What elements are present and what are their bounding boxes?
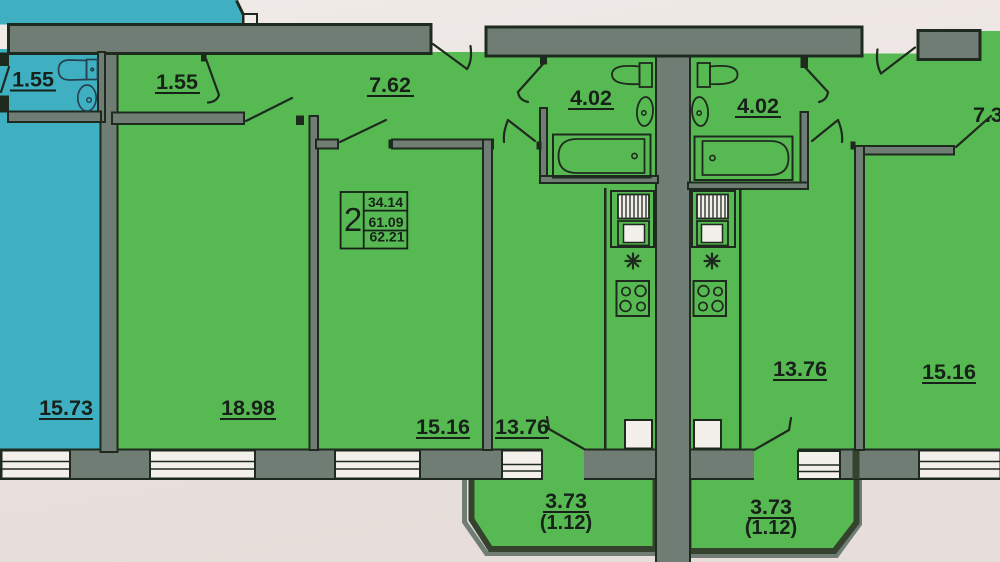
svg-text:62.21: 62.21: [369, 229, 404, 245]
svg-text:(1.12): (1.12): [540, 512, 592, 534]
svg-text:4.02: 4.02: [737, 94, 779, 118]
svg-text:2: 2: [344, 201, 362, 238]
svg-text:(1.12): (1.12): [745, 517, 797, 539]
svg-text:15.73: 15.73: [39, 396, 93, 420]
svg-text:3.73: 3.73: [545, 489, 587, 513]
svg-text:4.02: 4.02: [570, 86, 612, 110]
svg-text:1.55: 1.55: [156, 70, 198, 94]
svg-text:3.73: 3.73: [750, 495, 792, 519]
svg-text:61.09: 61.09: [368, 214, 403, 230]
svg-text:34.14: 34.14: [368, 194, 403, 210]
svg-text:18.98: 18.98: [221, 396, 275, 420]
svg-text:13.76: 13.76: [495, 415, 549, 439]
svg-text:13.76: 13.76: [773, 357, 827, 381]
svg-text:15.16: 15.16: [416, 415, 470, 439]
svg-text:7.36: 7.36: [973, 103, 1000, 127]
svg-text:1.55: 1.55: [12, 68, 54, 92]
svg-text:7.62: 7.62: [369, 73, 411, 97]
svg-text:15.16: 15.16: [922, 360, 976, 384]
